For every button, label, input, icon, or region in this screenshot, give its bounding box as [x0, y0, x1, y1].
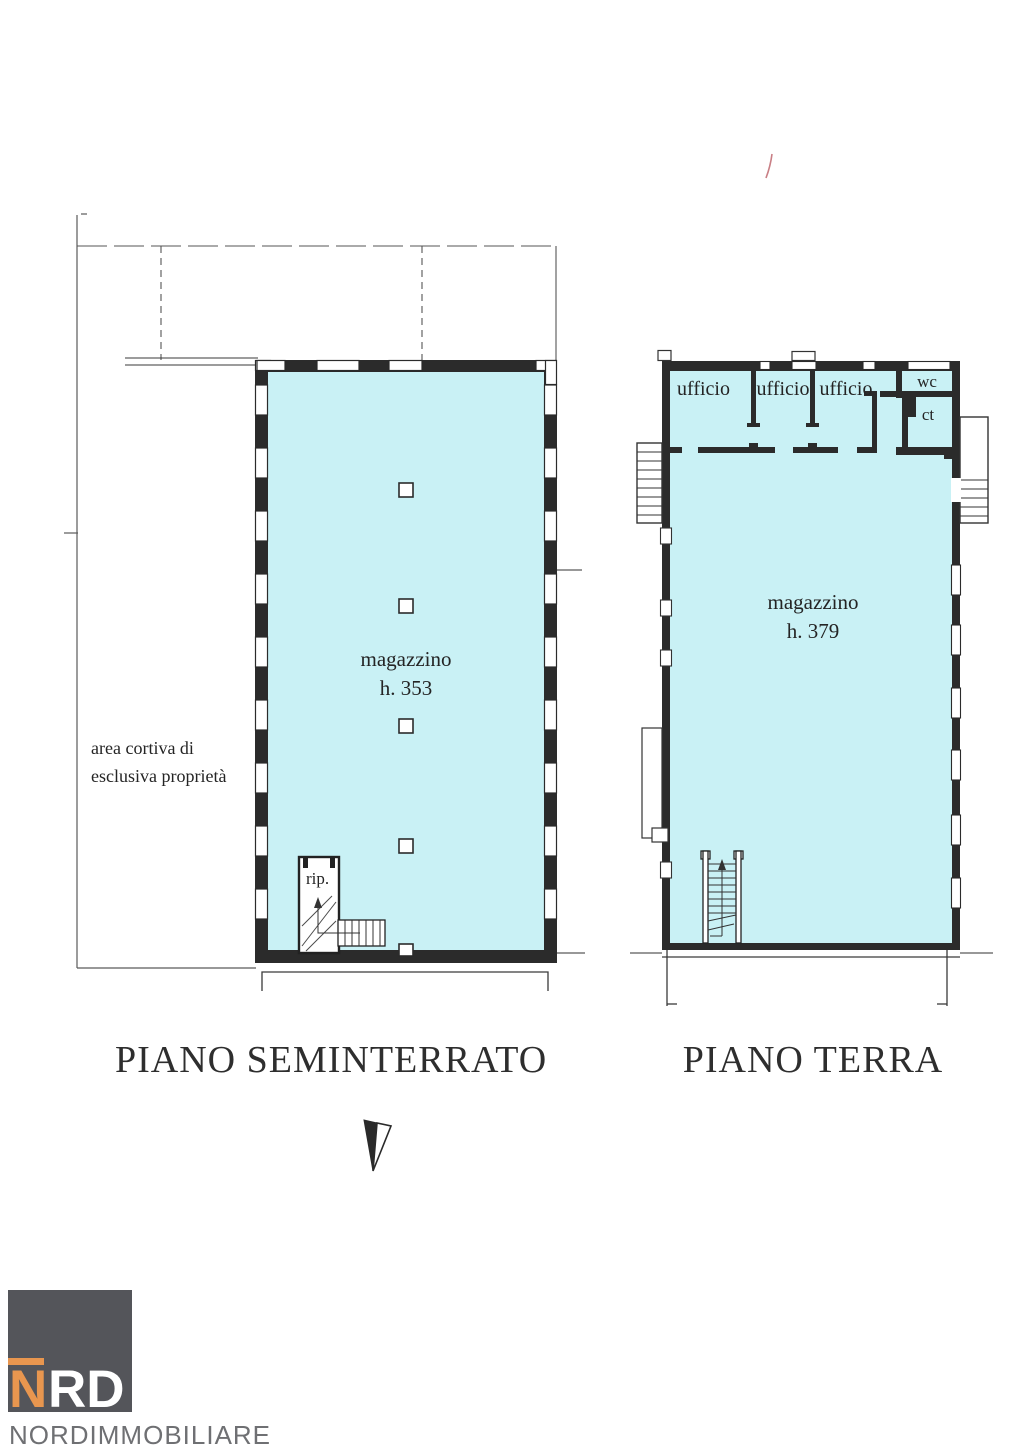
terra-room-label: magazzino: [743, 590, 883, 615]
wc-label: wc: [907, 372, 947, 392]
closet-label: rip.: [306, 869, 329, 889]
stair-door-gap: [951, 478, 961, 502]
terra-apron: [630, 950, 993, 1006]
overhang-outline: [77, 246, 556, 365]
floorplan-drawing: [0, 0, 1024, 1448]
courtyard-label-line2: esclusiva proprietà: [91, 766, 226, 787]
logo-monogram-n: N: [9, 1363, 47, 1416]
seminterrato-apron: [262, 972, 548, 991]
logo-company-name: NORDIMMOBILIARE: [9, 1420, 271, 1448]
office-label-2: ufficio: [748, 378, 818, 401]
terra-floor: [670, 371, 952, 943]
red-pen-mark: [766, 154, 772, 178]
terra-plan: [630, 351, 993, 1007]
terra-room-height: h. 379: [743, 619, 883, 644]
seminterrato-room-height: h. 353: [336, 676, 476, 701]
north-arrow: [364, 1120, 391, 1171]
office-label-3: ufficio: [811, 378, 881, 401]
logo-monogram-rd: RD: [48, 1363, 125, 1416]
seminterrato-room-label: magazzino: [336, 647, 476, 672]
ct-label: ct: [908, 405, 948, 425]
courtyard-label-line1: area cortiva di: [91, 738, 194, 759]
office-label-1: ufficio: [661, 378, 746, 401]
seminterrato-title: PIANO SEMINTERRATO: [115, 1038, 515, 1082]
floorplan-page: area cortiva di esclusiva proprietà maga…: [0, 0, 1024, 1448]
terra-internal-stair: [701, 851, 743, 943]
terra-title: PIANO TERRA: [663, 1038, 963, 1082]
terra-facade-pilasters: [658, 351, 815, 361]
terra-external-stair-left: [637, 443, 662, 523]
